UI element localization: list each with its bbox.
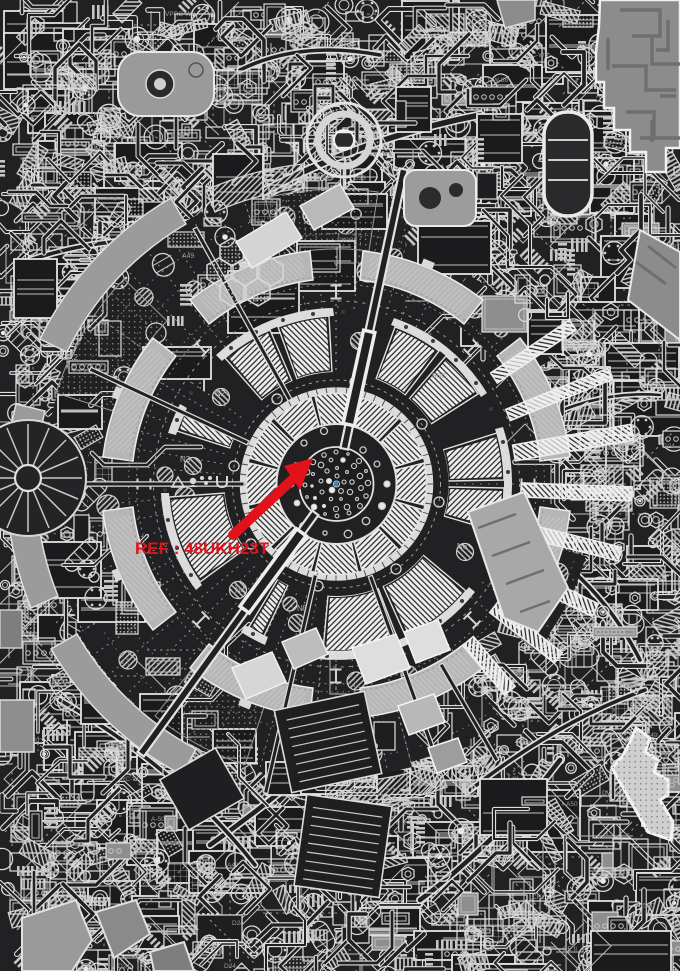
svg-text:D24: D24 [232,920,244,927]
svg-text:BSC: BSC [316,174,330,181]
svg-text:CR2: CR2 [532,894,545,901]
svg-text:DW-88: DW-88 [488,77,508,84]
svg-text:N7: N7 [634,338,643,345]
svg-text:D24: D24 [663,443,675,450]
svg-text:D24: D24 [500,295,512,302]
svg-text:D24: D24 [224,963,236,970]
svg-text:D24: D24 [118,963,130,970]
